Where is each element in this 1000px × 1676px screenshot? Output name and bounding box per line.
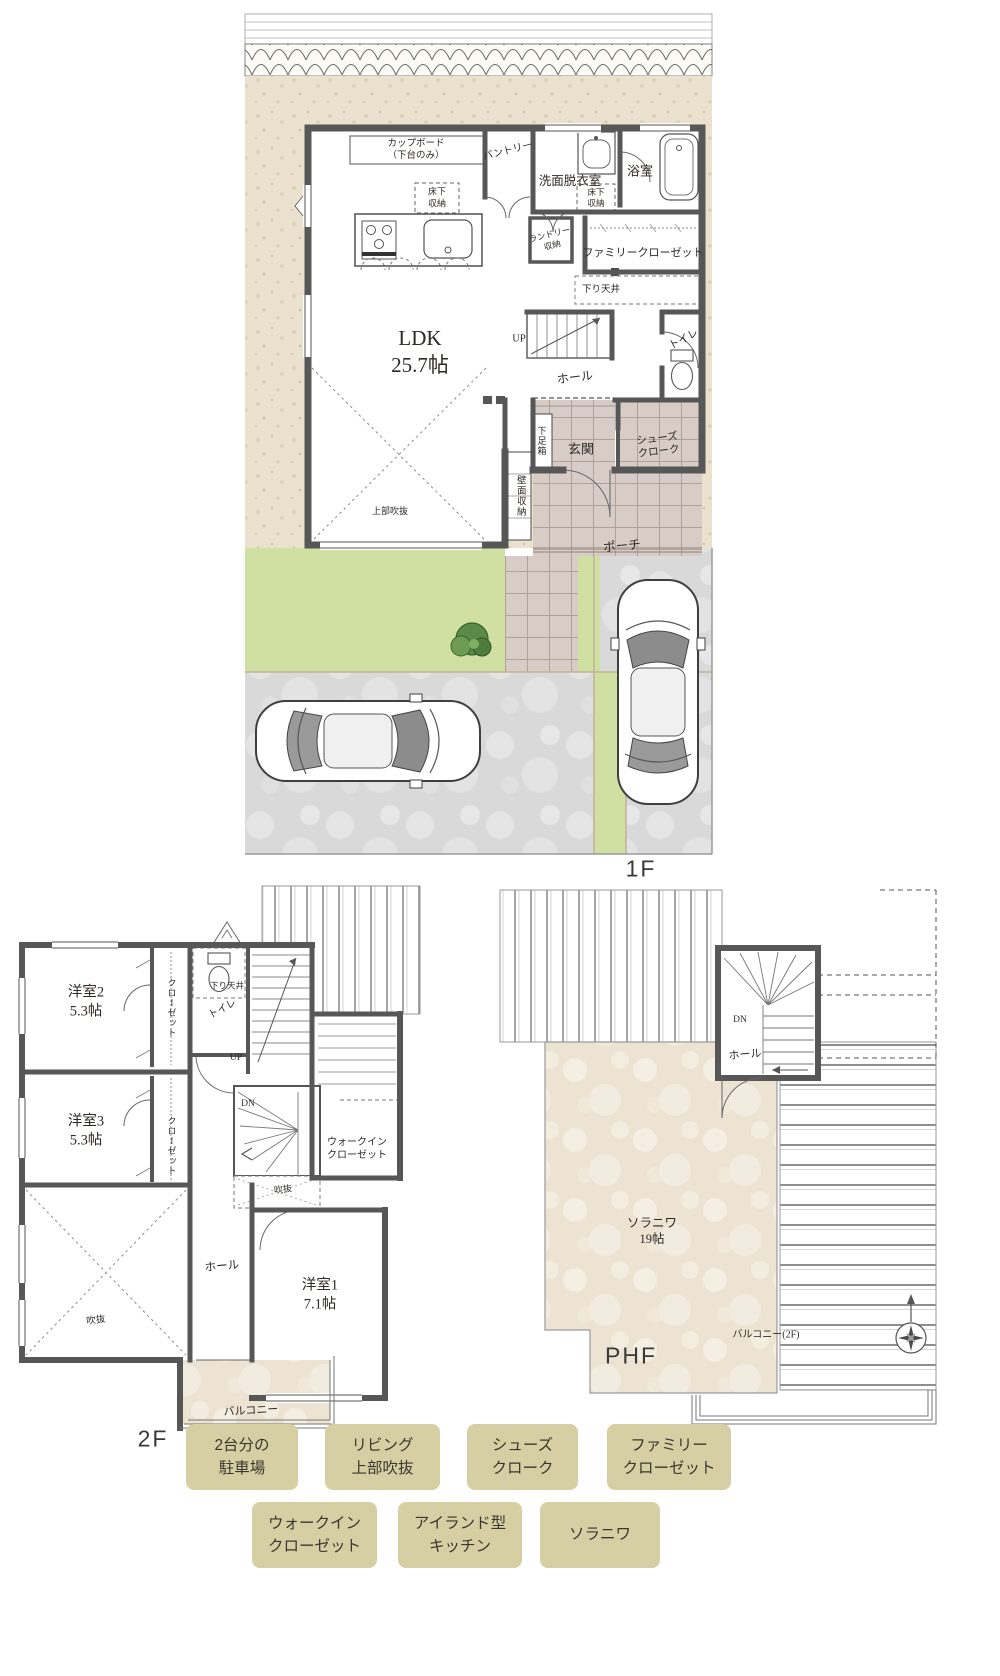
label-closet-b: クローゼット — [167, 1116, 176, 1176]
label-up-2f: UP — [230, 1052, 242, 1064]
label-dn-2f: DN — [241, 1098, 255, 1110]
feature-tag-family-closet: ファミリー クローゼット — [607, 1424, 731, 1490]
label-ldk: LDK 25.7帖 — [391, 325, 449, 379]
roof-band — [245, 14, 712, 76]
kitchen-island — [355, 214, 482, 270]
approach-path — [505, 556, 578, 672]
bathtub-icon — [660, 134, 698, 200]
floor1-label: 1F — [626, 856, 657, 883]
floorplan-page: カップボード （下台のみ） パントリー 洗面脱衣室 浴室 床下 収納 床下 収納… — [0, 0, 1000, 1676]
label-solaniwa: ソラニワ 19帖 — [627, 1215, 677, 1247]
label-lowered-ceiling-2f: 下り天井 — [210, 981, 244, 992]
dashed-guides-phf — [818, 890, 936, 1058]
feature-tag-solaniwa: ソラニワ — [540, 1502, 660, 1568]
feature-tag-shoes-cloak: シューズ クローク — [467, 1424, 578, 1490]
stairs-1f — [527, 312, 612, 358]
green-strip-upper — [578, 548, 600, 672]
label-room1: 洋室1 7.1帖 — [302, 1276, 338, 1313]
feature-tag-wic: ウォークイン クローゼット — [252, 1502, 377, 1568]
car-icon — [611, 580, 705, 804]
car-icon — [256, 694, 480, 788]
label-upper-void: 上部吹抜 — [372, 506, 408, 518]
label-lowered-ceiling-1f: 下り天井 — [582, 284, 620, 296]
label-shoe-box: 下足箱 — [537, 426, 546, 456]
label-up-1f: UP — [512, 332, 525, 345]
label-void-stairwell: 吹抜 — [273, 1183, 292, 1197]
label-room2: 洋室2 5.3帖 — [68, 983, 104, 1020]
label-hall-phf: ホール — [728, 1047, 762, 1064]
label-cupboard: カップボード （下台のみ） — [387, 138, 444, 162]
label-balcony: バルコニー — [223, 1403, 278, 1420]
washbasin-icon — [578, 132, 615, 174]
phf-plan — [500, 890, 936, 1424]
label-wall-storage: 壁面収納 — [514, 475, 524, 517]
label-hall-2f: ホール — [204, 1258, 240, 1276]
label-porch: ポーチ — [603, 536, 642, 555]
label-entrance: 玄関 — [568, 442, 594, 459]
label-wic: ウォークイン クローゼット — [327, 1137, 387, 1163]
label-underfloor-kitchen: 床下 収納 — [428, 186, 446, 209]
toilet-icon — [671, 350, 693, 390]
label-dn-phf: DN — [733, 1014, 747, 1026]
label-closet-a: クローゼット — [167, 978, 176, 1038]
label-bathroom: 浴室 — [627, 164, 653, 181]
label-balcony-2f-ref: バルコニー(2F) — [732, 1330, 799, 1343]
label-family-closet: ファミリークローゼット — [583, 246, 704, 260]
feature-tag-living-void: リビング 上部吹抜 — [325, 1424, 440, 1490]
label-shoes-cloak: シューズ クローク — [636, 430, 681, 462]
floor2-label: 2F — [138, 1426, 169, 1453]
phf-label: PHF — [605, 1343, 657, 1370]
label-underfloor-washroom: 床下 収納 — [587, 187, 604, 209]
roof-hatch-phf-left — [500, 890, 722, 1042]
feature-tag-parking: 2台分の 駐車場 — [186, 1424, 298, 1490]
feature-tag-island-kitchen: アイランド型 キッチン — [398, 1502, 522, 1568]
balcony2f-railing — [692, 1390, 936, 1424]
label-room3: 洋室3 5.3帖 — [68, 1112, 104, 1149]
label-void-living: 吹抜 — [86, 1314, 106, 1328]
